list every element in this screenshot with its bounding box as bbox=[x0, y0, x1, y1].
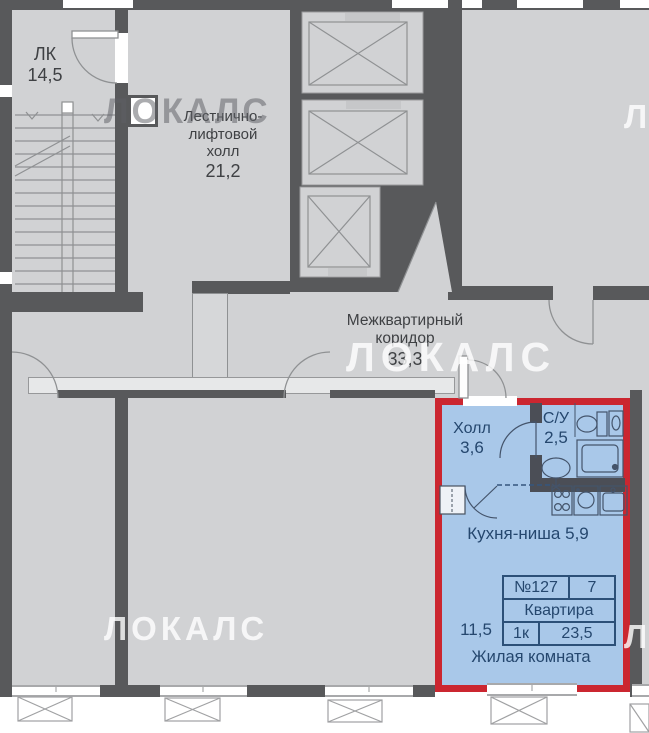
label-corridor: Межквартирный коридор 33,3 bbox=[310, 312, 500, 370]
corridor-name-2: коридор bbox=[310, 330, 500, 348]
label-apt-hall: Холл 3,6 bbox=[442, 420, 502, 458]
elevator-door-icon bbox=[346, 101, 401, 109]
apartment-rooms: 1к bbox=[504, 623, 540, 644]
label-stairwell: ЛК 14,5 bbox=[10, 44, 80, 86]
door-top-right-room bbox=[549, 300, 593, 344]
door-corridor-left bbox=[12, 352, 58, 398]
angled-wall-cut bbox=[398, 202, 452, 292]
balcony-4 bbox=[491, 697, 547, 724]
stairwell-name: ЛК bbox=[10, 44, 80, 65]
corridor-area: 33,3 bbox=[310, 349, 500, 370]
stairwell-area: 14,5 bbox=[10, 65, 80, 86]
door-hall-living bbox=[465, 486, 497, 518]
apartment-type: Квартира bbox=[504, 600, 614, 621]
elevator-door-icon bbox=[345, 13, 400, 21]
balconies bbox=[18, 697, 649, 732]
apartment-floor: 7 bbox=[568, 577, 614, 598]
lift-hall-name-2: лифтовой bbox=[148, 126, 298, 144]
staircase bbox=[15, 102, 115, 292]
lift-hall-name-1: Лестнично- bbox=[148, 108, 298, 126]
balcony-3 bbox=[328, 700, 382, 722]
label-living-room: Жилая комната bbox=[441, 648, 621, 667]
label-apt-bathroom: С/У 2,5 bbox=[533, 410, 579, 448]
elevator-shaft-3 bbox=[300, 187, 380, 277]
floor-plan: ЛК 14,5 Лестнично- лифтовой холл 21,2 Ме… bbox=[0, 0, 649, 733]
shower-icon bbox=[577, 440, 623, 477]
elevator-shaft-1 bbox=[302, 12, 423, 93]
apt-bathroom-area: 2,5 bbox=[533, 428, 579, 448]
balcony-2 bbox=[165, 698, 220, 721]
table-row: №127 7 bbox=[504, 577, 614, 598]
apartment-number: №127 bbox=[504, 577, 568, 598]
lift-hall-area: 21,2 bbox=[148, 161, 298, 182]
lift-hall-name-3: холл bbox=[148, 143, 298, 161]
label-lift-hall: Лестнично- лифтовой холл 21,2 bbox=[148, 108, 298, 182]
table-row: 1к 23,5 bbox=[504, 621, 614, 644]
apt-hall-area: 3,6 bbox=[442, 438, 502, 458]
window-ticks bbox=[56, 685, 532, 692]
door-bathroom bbox=[500, 422, 536, 458]
apt-bathroom-name: С/У bbox=[533, 410, 579, 428]
apartment-info-table: №127 7 Квартира 1к 23,5 bbox=[502, 575, 616, 646]
elevator-door-icon bbox=[328, 268, 367, 276]
bathroom-sink-icon bbox=[609, 411, 623, 436]
corridor-name-1: Межквартирный bbox=[310, 312, 500, 330]
apartment-total-area: 23,5 bbox=[540, 623, 614, 644]
apt-hall-name: Холл bbox=[442, 420, 502, 438]
elevator-shaft-2 bbox=[302, 100, 423, 185]
label-living-area: 11,5 bbox=[454, 620, 498, 640]
table-row: Квартира bbox=[504, 598, 614, 621]
balcony-1 bbox=[18, 697, 72, 721]
label-kitchen-niche: Кухня-ниша 5,9 bbox=[438, 524, 618, 544]
elevators bbox=[300, 12, 452, 292]
balcony-5 bbox=[630, 704, 649, 732]
wardrobe-icon bbox=[440, 486, 465, 514]
toilet-icon bbox=[577, 412, 607, 436]
